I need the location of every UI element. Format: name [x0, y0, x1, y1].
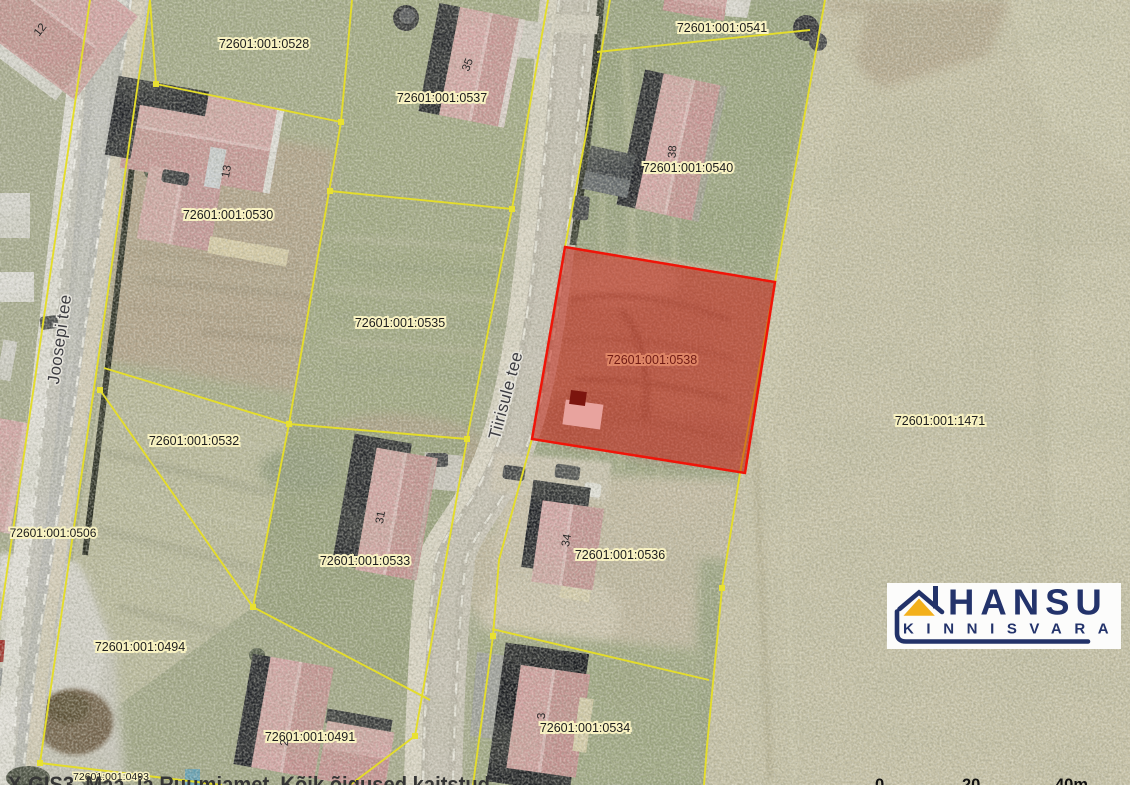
- svg-text:13: 13: [220, 164, 234, 179]
- svg-text:0: 0: [875, 776, 884, 785]
- svg-text:31: 31: [374, 510, 388, 525]
- svg-text:72601:001:0541: 72601:001:0541: [677, 21, 767, 35]
- svg-text:72601:001:1471: 72601:001:1471: [895, 414, 985, 428]
- svg-text:72601:001:0494: 72601:001:0494: [95, 640, 185, 654]
- svg-text:72601:001:0528: 72601:001:0528: [219, 37, 309, 51]
- svg-text:72601:001:0535: 72601:001:0535: [355, 316, 445, 330]
- svg-text:72601:001:0533: 72601:001:0533: [320, 554, 410, 568]
- svg-text:38: 38: [667, 145, 680, 159]
- svg-text:2: 2: [279, 739, 292, 746]
- svg-text:72601:001:0532: 72601:001:0532: [149, 434, 239, 448]
- svg-text:72601:001:0540: 72601:001:0540: [643, 161, 733, 175]
- svg-text:40m: 40m: [1055, 776, 1088, 785]
- svg-text:KINNISVARA: KINNISVARA: [903, 621, 1121, 638]
- svg-text:20: 20: [962, 776, 980, 785]
- svg-text:X-GIS3, Maa- ja Ruumiamet. Kõi: X-GIS3, Maa- ja Ruumiamet. Kõik õigused …: [8, 772, 490, 785]
- svg-text:72601:001:0506: 72601:001:0506: [10, 526, 97, 540]
- svg-text:72601:001:0530: 72601:001:0530: [183, 208, 273, 222]
- svg-text:HANSU: HANSU: [948, 582, 1108, 623]
- svg-text:3: 3: [536, 712, 548, 719]
- svg-text:72601:001:0537: 72601:001:0537: [397, 91, 487, 105]
- svg-text:72601:001:0536: 72601:001:0536: [575, 548, 665, 562]
- svg-text:72601:001:0534: 72601:001:0534: [540, 721, 630, 735]
